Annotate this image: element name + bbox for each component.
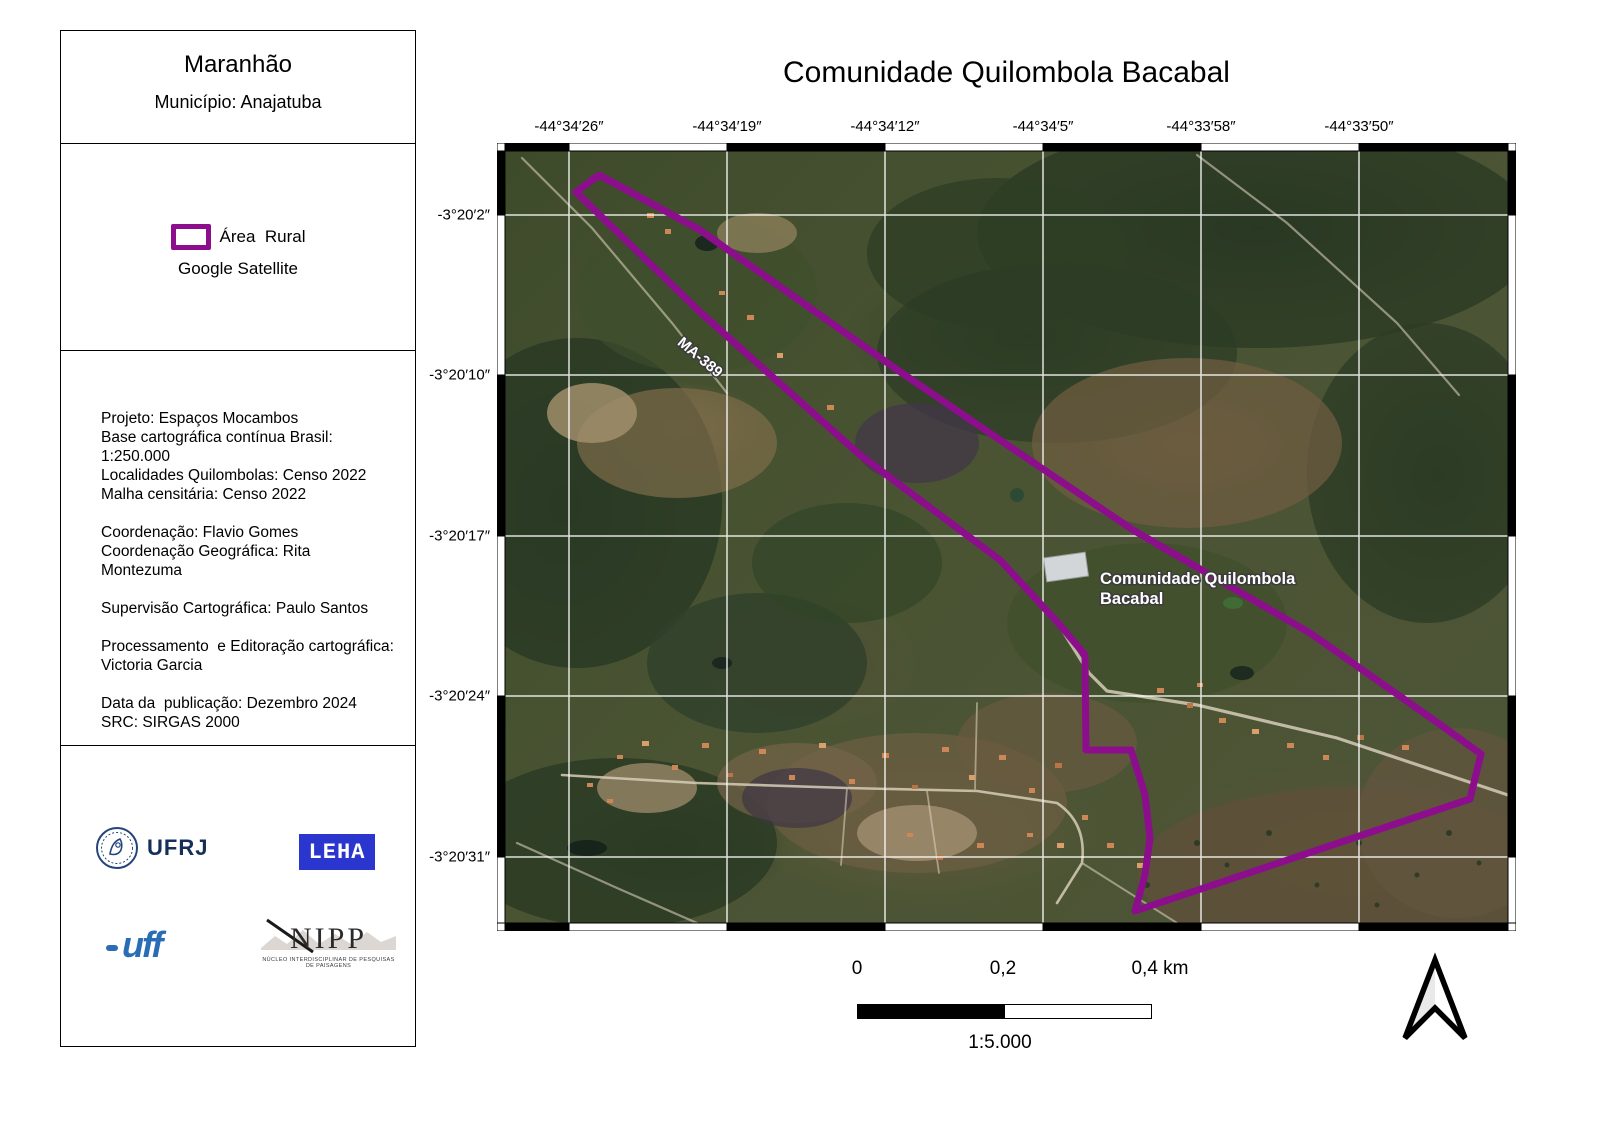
warehouse-building: [1044, 552, 1089, 582]
leha-wordmark: LEHA: [309, 840, 366, 865]
credits-line: Base cartográfica contínua Brasil:: [101, 428, 395, 447]
scale-ratio: 1:5.000: [968, 1032, 1031, 1054]
latitude-label: -3°20′17″: [429, 528, 490, 545]
credits-line: Victoria Garcia: [101, 656, 395, 675]
map-title: Comunidade Quilombola Bacabal: [497, 56, 1516, 90]
scalebar-tick-1: 0,2: [990, 958, 1016, 980]
north-arrow-icon: [1393, 950, 1477, 1046]
ufrj-seal-icon: [94, 824, 140, 872]
credits-line: Data da publicação: Dezembro 2024: [101, 694, 395, 713]
credits-line: Projeto: Espaços Mocambos: [101, 409, 395, 428]
nipp-wordmark: NIPP: [261, 922, 396, 956]
latitude-label: -3°20′31″: [429, 849, 490, 866]
title-section: Maranhão Município: Anajatuba: [61, 31, 415, 144]
place-label-line1: Comunidade Quilombola: [1100, 570, 1296, 588]
credits-line: [101, 580, 395, 599]
nipp-subtitle: NÚCLEO INTERDISCIPLINAR DE PESQUISAS DE …: [261, 957, 396, 969]
logos-section: UFRJ LEHA uff NIPP NÚCLEO INTERDISCIPLIN…: [61, 746, 415, 1046]
credits-line: [101, 675, 395, 694]
credits-line: Processamento e Editoração cartográfica:: [101, 637, 395, 656]
longitude-label: -44°34′26″: [534, 118, 603, 135]
uff-dash-icon: [106, 945, 118, 951]
credits-line: SRC: SIRGAS 2000: [101, 713, 395, 732]
uff-wordmark: uff: [122, 924, 161, 966]
longitude-label: -44°34′12″: [850, 118, 919, 135]
latitude-label: -3°20′24″: [429, 688, 490, 705]
place-label-line2: Bacabal: [1100, 590, 1163, 608]
nipp-art: NIPP: [261, 914, 396, 956]
scalebar-bar: [857, 1004, 1152, 1019]
area-rural-swatch: [171, 224, 211, 250]
nipp-logo: NIPP NÚCLEO INTERDISCIPLINAR DE PESQUISA…: [261, 914, 396, 969]
credits-line: [101, 504, 395, 523]
credits-line: Coordenação: Flavio Gomes: [101, 523, 395, 542]
credits-line: Malha censitária: Censo 2022: [101, 485, 395, 504]
credits-block: Projeto: Espaços Mocambos Base cartográf…: [101, 409, 395, 732]
scalebar-tick-0: 0: [852, 958, 863, 980]
uff-logo: uff: [106, 924, 161, 966]
credits-line: [101, 618, 395, 637]
credits-section: Projeto: Espaços Mocambos Base cartográf…: [61, 351, 415, 746]
credits-line: Localidades Quilombolas: Censo 2022: [101, 466, 395, 485]
map-canvas: MA-389 Comunidade Quilombola Bacabal: [497, 143, 1516, 931]
longitude-label: -44°33′50″: [1324, 118, 1393, 135]
ufrj-logo: UFRJ: [94, 824, 208, 872]
municipality-label: Município: Anajatuba: [61, 92, 415, 113]
info-panel: Maranhão Município: Anajatuba Área Rural…: [60, 30, 416, 1047]
ufrj-wordmark: UFRJ: [147, 835, 208, 861]
legend-section: Área Rural Google Satellite: [61, 144, 415, 351]
latitude-label: -3°20′2″: [438, 207, 491, 224]
credits-line: Coordenação Geográfica: Rita Montezuma: [101, 542, 395, 580]
state-title: Maranhão: [61, 51, 415, 79]
longitude-label: -44°33′58″: [1166, 118, 1235, 135]
leha-logo: LEHA: [299, 834, 375, 870]
longitude-label: -44°34′19″: [692, 118, 761, 135]
longitude-label: -44°34′5″: [1013, 118, 1074, 135]
legend-item-area-rural: Área Rural: [61, 224, 415, 250]
map-layout-page: Maranhão Município: Anajatuba Área Rural…: [0, 0, 1600, 1131]
basemap-label: Google Satellite: [61, 259, 415, 279]
credits-line: Supervisão Cartográfica: Paulo Santos: [101, 599, 395, 618]
scalebar-tick-2: 0,4 km: [1131, 958, 1188, 980]
latitude-label: -3°20′10″: [429, 367, 490, 384]
credits-line: 1:250.000: [101, 447, 395, 466]
area-rural-label: Área Rural: [220, 227, 306, 247]
